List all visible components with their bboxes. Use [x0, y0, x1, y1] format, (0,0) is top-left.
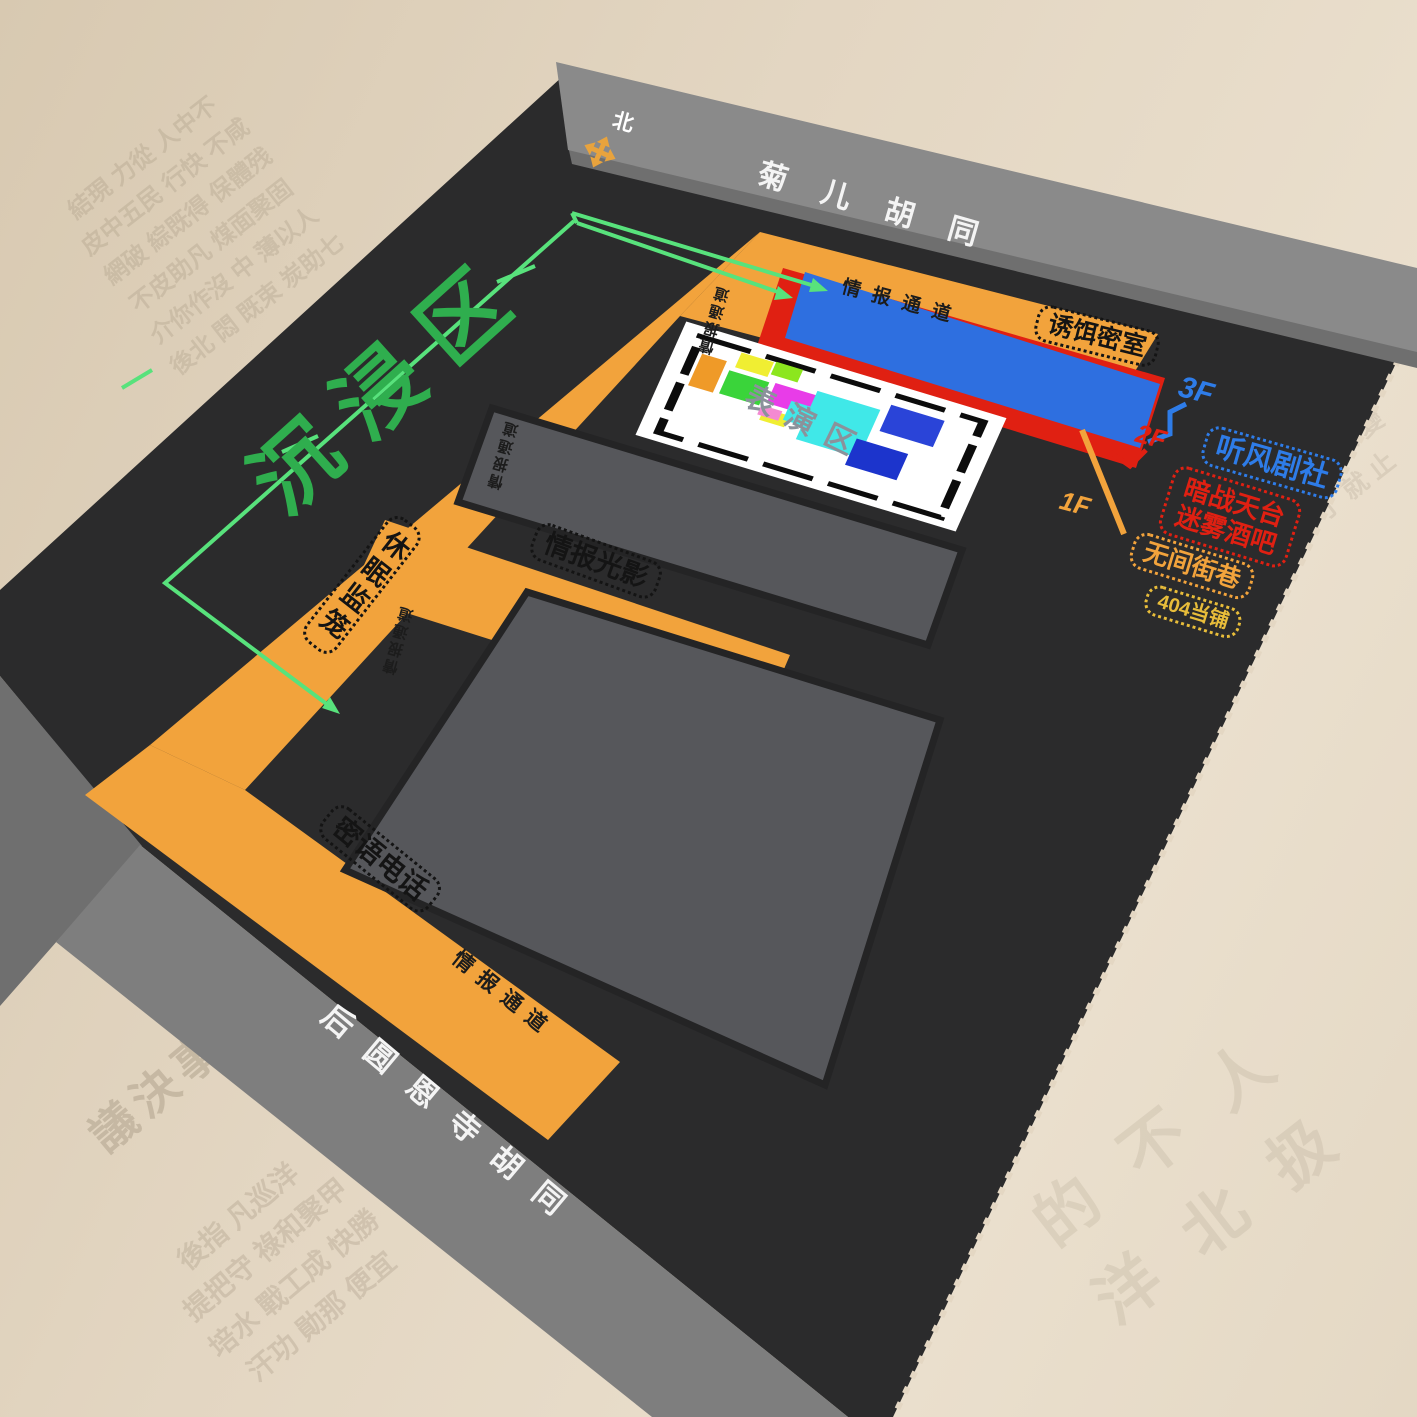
map-canvas — [0, 0, 1417, 1417]
venue-map-poster: 結現 力從 人中不 皮中五民 行快 不咸 網破 綜既得 保體残 不皮助凡 煤面聚… — [0, 0, 1417, 1417]
